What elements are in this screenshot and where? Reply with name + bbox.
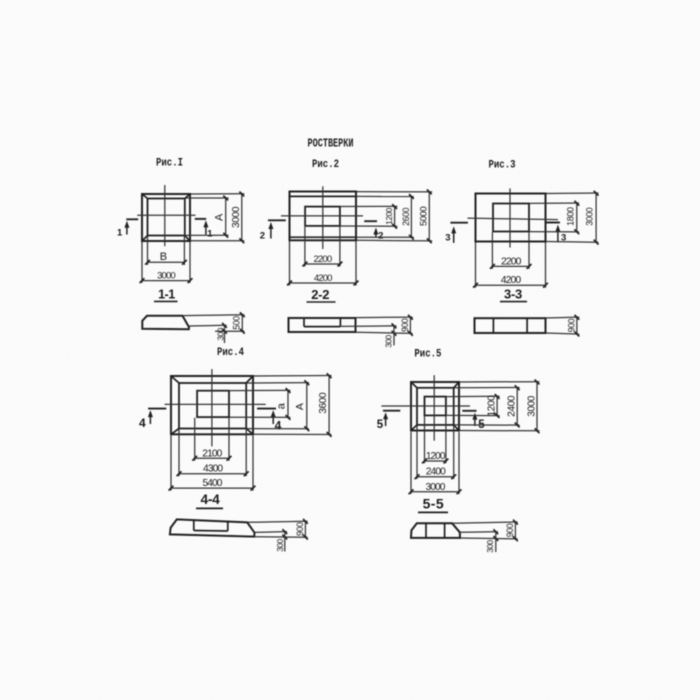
svg-text:2200: 2200 — [314, 254, 332, 265]
svg-text:РОСТВЕРКИ: РОСТВЕРКИ — [308, 137, 354, 151]
svg-text:Рис.I: Рис.I — [156, 158, 183, 170]
svg-text:1200: 1200 — [385, 207, 394, 224]
svg-text:300: 300 — [276, 538, 285, 551]
svg-text:1200: 1200 — [426, 451, 446, 462]
svg-text:Рис.3: Рис.3 — [489, 160, 516, 172]
svg-text:900: 900 — [295, 522, 305, 536]
svg-text:1200: 1200 — [487, 395, 498, 417]
svg-text:A: A — [294, 403, 306, 410]
svg-text:В: В — [160, 251, 167, 263]
svg-text:2400: 2400 — [507, 395, 518, 417]
svg-text:2: 2 — [260, 231, 265, 242]
svg-text:4200: 4200 — [314, 273, 332, 284]
svg-text:2400: 2400 — [426, 467, 446, 478]
svg-text:5000: 5000 — [418, 207, 429, 226]
svg-text:1800: 1800 — [565, 207, 575, 226]
svg-text:4-4: 4-4 — [200, 492, 220, 507]
svg-text:3000: 3000 — [157, 271, 175, 282]
svg-text:5-5: 5-5 — [423, 496, 444, 512]
svg-text:300: 300 — [217, 327, 226, 340]
svg-text:900: 900 — [400, 318, 410, 332]
svg-text:4200: 4200 — [501, 275, 522, 286]
svg-text:A: A — [213, 213, 225, 221]
svg-text:4: 4 — [139, 416, 146, 430]
svg-text:3000: 3000 — [231, 206, 242, 228]
svg-text:3000: 3000 — [585, 207, 595, 225]
svg-text:2100: 2100 — [202, 448, 222, 459]
svg-text:300: 300 — [385, 334, 394, 347]
svg-text:500: 500 — [232, 316, 242, 330]
svg-text:1: 1 — [117, 227, 123, 238]
svg-text:2200: 2200 — [501, 256, 522, 267]
svg-text:900: 900 — [505, 523, 515, 537]
svg-text:Рис.4: Рис.4 — [217, 347, 244, 359]
svg-text:5: 5 — [377, 419, 384, 431]
svg-text:Рис.5: Рис.5 — [414, 348, 441, 360]
svg-text:1-1: 1-1 — [158, 287, 175, 301]
svg-text:3-3: 3-3 — [504, 286, 522, 301]
svg-text:300: 300 — [486, 539, 495, 552]
svg-text:3600: 3600 — [318, 392, 329, 414]
svg-text:2-2: 2-2 — [311, 287, 329, 302]
svg-text:4300: 4300 — [203, 464, 223, 475]
svg-text:2600: 2600 — [401, 207, 411, 225]
svg-text:3000: 3000 — [425, 482, 445, 493]
svg-text:4: 4 — [275, 418, 282, 432]
svg-text:a: a — [275, 402, 287, 409]
svg-text:1: 1 — [207, 229, 213, 240]
svg-text:Рис.2: Рис.2 — [312, 159, 339, 171]
svg-text:900: 900 — [566, 318, 576, 332]
svg-text:3000: 3000 — [526, 395, 537, 416]
svg-text:5400: 5400 — [202, 478, 222, 489]
svg-text:3: 3 — [445, 233, 450, 244]
